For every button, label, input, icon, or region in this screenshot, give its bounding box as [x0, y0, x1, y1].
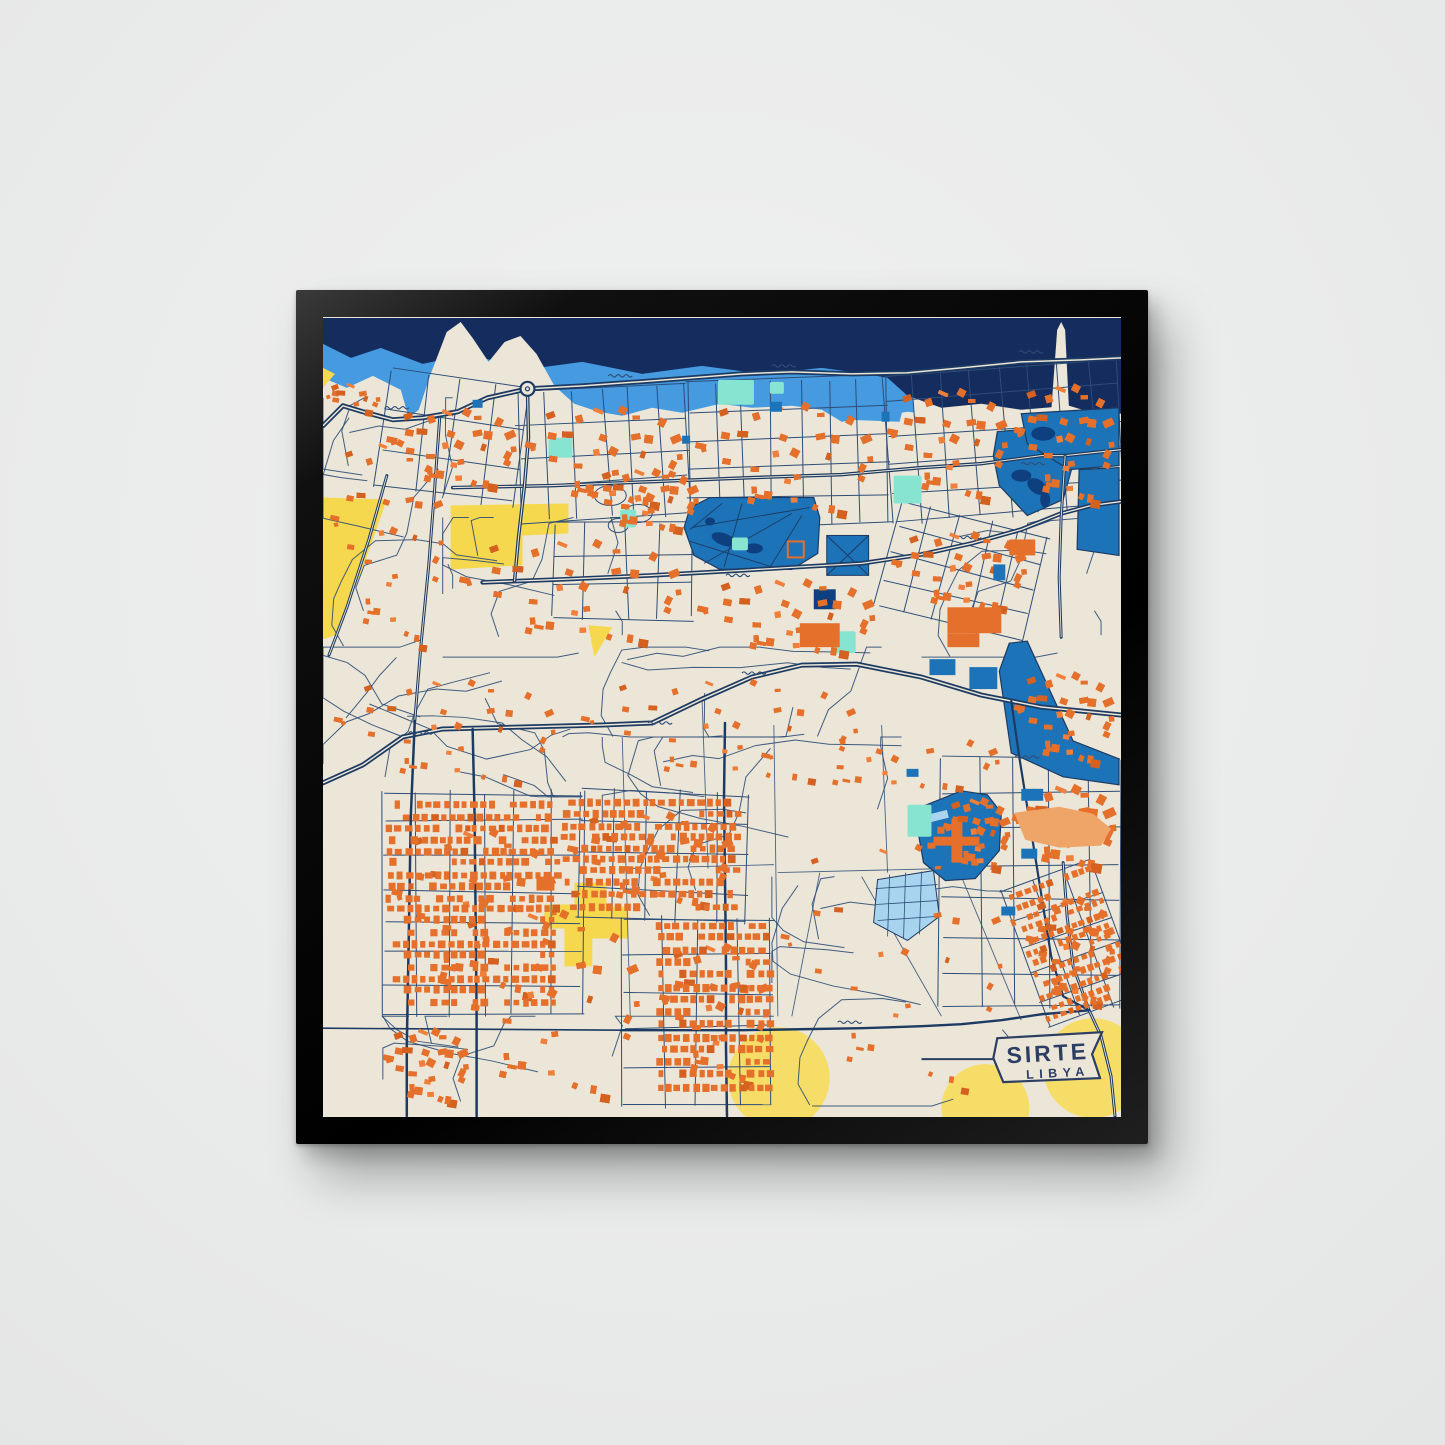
poster-frame: SIRTE LIBYA [296, 290, 1148, 1144]
map-title: SIRTE [1006, 1038, 1090, 1069]
map-canvas: SIRTE LIBYA [323, 317, 1121, 1117]
map-artwork [323, 317, 1121, 1117]
city-map: SIRTE LIBYA [323, 317, 1121, 1117]
wall: SIRTE LIBYA [0, 0, 1445, 1445]
